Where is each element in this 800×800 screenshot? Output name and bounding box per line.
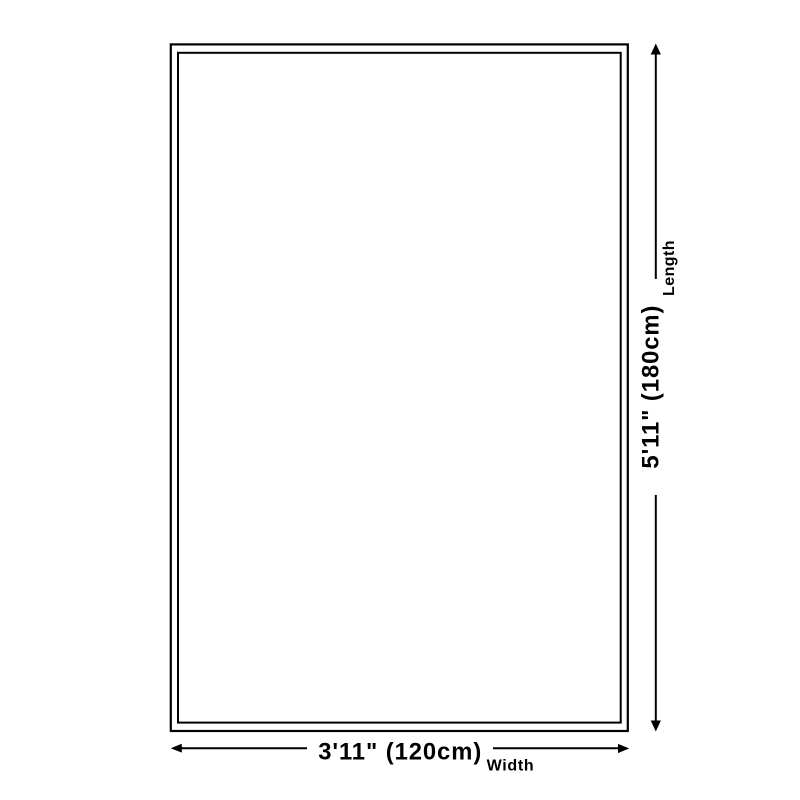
- svg-text:3'11" (120cm): 3'11" (120cm): [318, 739, 482, 766]
- svg-text:5'11" (180cm): 5'11" (180cm): [638, 305, 665, 469]
- svg-text:Length: Length: [661, 240, 678, 296]
- svg-text:Width: Width: [487, 758, 535, 775]
